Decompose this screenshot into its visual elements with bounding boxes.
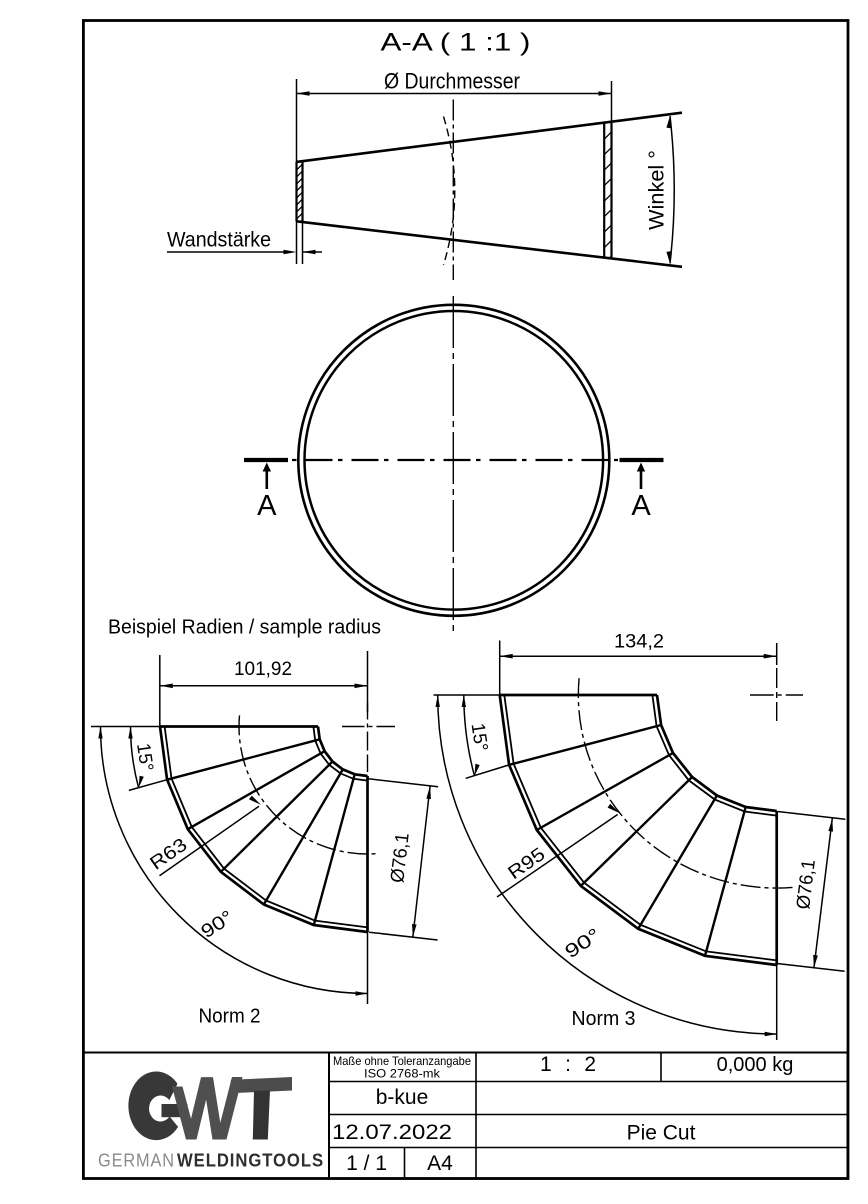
svg-text:b-kue: b-kue [376,1086,429,1109]
svg-text:0,000 kg: 0,000 kg [717,1054,794,1076]
svg-text:Norm 3: Norm 3 [572,1007,636,1030]
svg-text:101,92: 101,92 [234,659,292,680]
svg-text:Wandstärke: Wandstärke [167,229,271,252]
svg-text:Winkel °: Winkel ° [646,150,669,230]
svg-text:Ø Durchmesser: Ø Durchmesser [384,69,520,94]
svg-text:A: A [257,490,277,522]
svg-text:Ø76,1: Ø76,1 [387,832,414,884]
svg-text:1 / 1: 1 / 1 [346,1152,387,1175]
svg-text:A: A [631,490,651,522]
svg-text:GERMAN: GERMAN [98,1151,175,1171]
svg-text:A4: A4 [427,1152,453,1175]
svg-text:15°: 15° [132,742,157,773]
svg-text:Ø76,1: Ø76,1 [793,858,820,910]
svg-text:134,2: 134,2 [614,632,664,653]
svg-text:A-A ( 1 :1 ): A-A ( 1 :1 ) [381,29,531,57]
svg-text:15°: 15° [467,722,492,753]
svg-text:Pie Cut: Pie Cut [627,1122,696,1145]
svg-text:Norm 2: Norm 2 [199,1005,261,1028]
svg-text:WELDINGTOOLS: WELDINGTOOLS [177,1151,324,1171]
svg-text:Beispiel Radien / sample radiu: Beispiel Radien / sample radius [108,616,381,639]
svg-text:90°: 90° [561,925,604,963]
svg-text:ISO 2768-mk: ISO 2768-mk [364,1067,441,1081]
svg-text:1 : 2: 1 : 2 [540,1053,596,1076]
svg-text:12.07.2022: 12.07.2022 [332,1121,452,1144]
svg-text:R95: R95 [504,844,549,884]
